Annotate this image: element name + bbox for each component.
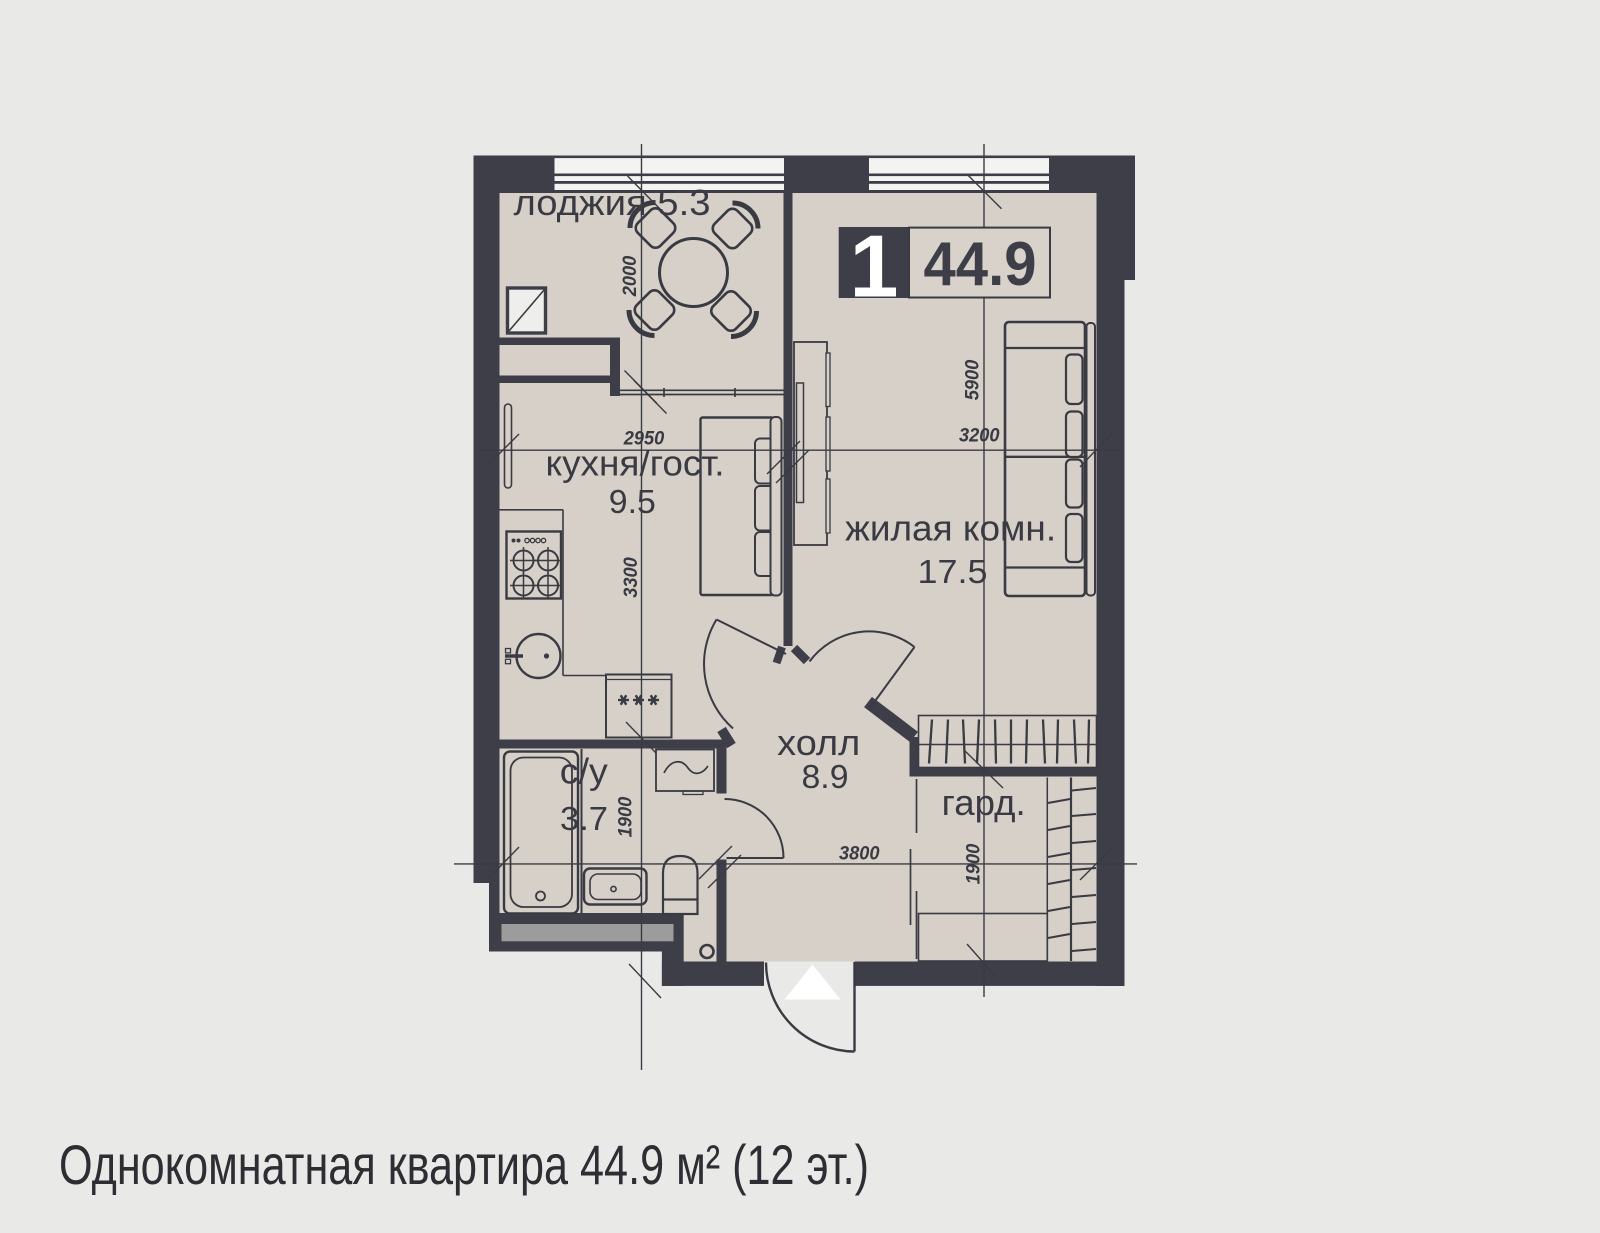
svg-text:холл: холл	[777, 722, 860, 763]
svg-text:3300: 3300	[621, 557, 642, 598]
svg-text:3800: 3800	[839, 844, 880, 865]
svg-text:Однокомнатная квартира 44.9 м²: Однокомнатная квартира 44.9 м² (12 эт.)	[59, 1133, 869, 1196]
svg-text:1900: 1900	[963, 843, 984, 884]
svg-text:лоджия 5.3: лоджия 5.3	[514, 182, 711, 223]
svg-text:3200: 3200	[959, 426, 1000, 447]
svg-text:5900: 5900	[963, 359, 984, 400]
svg-text:2950: 2950	[623, 429, 665, 450]
svg-text:1900: 1900	[616, 796, 637, 837]
svg-text:гард.: гард.	[942, 782, 1026, 823]
svg-text:9.5: 9.5	[609, 483, 656, 520]
svg-text:жилая комн.: жилая комн.	[845, 508, 1056, 549]
svg-text:2000: 2000	[620, 255, 641, 297]
svg-text:17.5: 17.5	[918, 553, 988, 590]
svg-text:3.7: 3.7	[560, 800, 608, 837]
svg-text:с/у: с/у	[560, 751, 608, 792]
svg-text:1: 1	[850, 217, 899, 316]
svg-text:44.9: 44.9	[924, 230, 1037, 299]
svg-text:8.9: 8.9	[802, 758, 849, 795]
